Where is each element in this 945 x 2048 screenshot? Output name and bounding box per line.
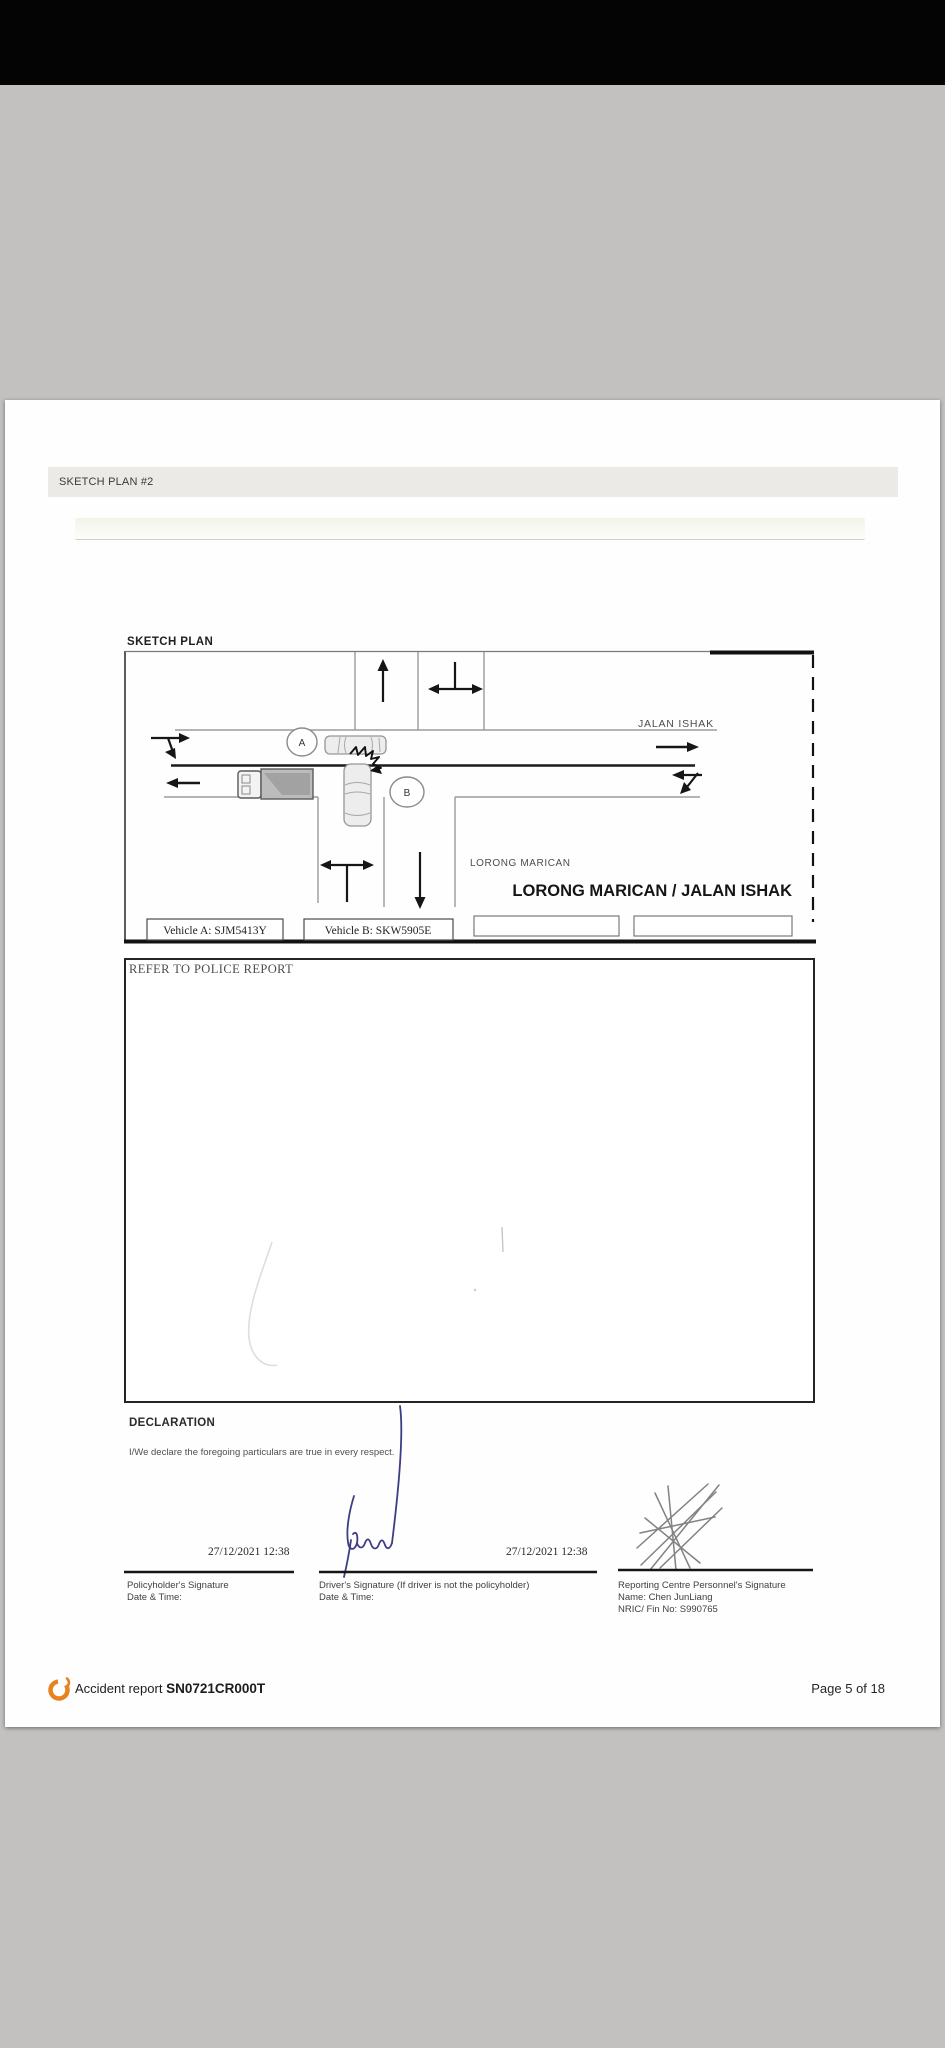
fork-arrow-right bbox=[672, 770, 702, 794]
driver-signature-ink bbox=[344, 1406, 401, 1577]
driver-datetime-label: Date & Time: bbox=[319, 1592, 604, 1604]
sketch-plan-heading: SKETCH PLAN bbox=[127, 636, 213, 648]
t-junction-arrow-bottom bbox=[320, 860, 374, 902]
policyholder-signature-block: Policyholder's Signature Date & Time: bbox=[127, 1580, 307, 1604]
svg-text:Vehicle B: SKW5905E: Vehicle B: SKW5905E bbox=[325, 925, 432, 937]
marker-b-circle: B bbox=[390, 777, 424, 807]
svg-text:B: B bbox=[404, 788, 411, 799]
svg-text:Vehicle A: SJM5413Y: Vehicle A: SJM5413Y bbox=[163, 925, 267, 937]
report-label: Accident report bbox=[75, 1681, 162, 1696]
page-indicator: Page 5 of 18 bbox=[811, 1681, 885, 1696]
sketch-plan-diagram: A B JALAN ISHAK LORONG MARICAN LORONG MA… bbox=[124, 650, 816, 944]
footer-report-id: Accident report SN0721CR000T bbox=[75, 1681, 265, 1696]
faint-pen-marks bbox=[126, 960, 813, 1401]
vehicle-box-empty-1 bbox=[474, 916, 619, 936]
policyholder-datetime-label: Date & Time: bbox=[127, 1592, 307, 1604]
section-header-bar: SKETCH PLAN #2 bbox=[48, 467, 898, 497]
right-arrow bbox=[656, 742, 699, 752]
description-box: REFER TO POLICE REPORT bbox=[124, 958, 815, 1403]
status-bar bbox=[0, 0, 945, 85]
section-title: SKETCH PLAN #2 bbox=[59, 476, 154, 488]
vehicle-a-graphic bbox=[325, 736, 386, 754]
truck-graphic bbox=[238, 769, 313, 799]
screenshot-canvas: SKETCH PLAN #2 SKETCH PLAN bbox=[0, 0, 945, 2048]
vehicle-b-box: Vehicle B: SKW5905E bbox=[304, 919, 453, 940]
fork-arrow-left bbox=[151, 733, 190, 759]
report-page: SKETCH PLAN #2 SKETCH PLAN bbox=[5, 400, 940, 1727]
vehicle-a-box: Vehicle A: SJM5413Y bbox=[147, 919, 283, 940]
marker-a-circle: A bbox=[287, 728, 317, 756]
road-label-jalan-ishak: JALAN ISHAK bbox=[638, 718, 714, 730]
driver-signature-label: Driver's Signature (If driver is not the… bbox=[319, 1580, 604, 1592]
svg-text:A: A bbox=[299, 738, 306, 749]
personnel-signature-scribble bbox=[637, 1484, 722, 1570]
policyholder-signature-label: Policyholder's Signature bbox=[127, 1580, 307, 1592]
scan-artifact-strip bbox=[75, 518, 865, 540]
up-arrow bbox=[378, 659, 389, 702]
personnel-nric: NRIC/ Fin No: S990765 bbox=[618, 1604, 843, 1616]
vehicle-b-graphic bbox=[344, 764, 371, 826]
driver-signature-block: Driver's Signature (If driver is not the… bbox=[319, 1580, 604, 1604]
personnel-signature-block: Reporting Centre Personnel's Signature N… bbox=[618, 1580, 843, 1615]
policyholder-datetime: 27/12/2021 12:38 bbox=[208, 1546, 289, 1558]
t-junction-arrow-top bbox=[428, 662, 483, 694]
personnel-name: Name: Chen JunLiang bbox=[618, 1592, 843, 1604]
left-arrow bbox=[166, 778, 200, 788]
down-arrow bbox=[415, 852, 426, 909]
road-label-lorong-marican: LORONG MARICAN bbox=[470, 858, 571, 869]
driver-datetime: 27/12/2021 12:38 bbox=[506, 1546, 587, 1558]
personnel-signature-label: Reporting Centre Personnel's Signature bbox=[618, 1580, 843, 1592]
junction-label: LORONG MARICAN / JALAN ISHAK bbox=[512, 882, 792, 900]
vehicle-box-empty-2 bbox=[634, 916, 792, 936]
signature-lines bbox=[124, 1570, 813, 1572]
insurer-logo-icon bbox=[47, 1676, 73, 1702]
report-number: SN0721CR000T bbox=[166, 1681, 265, 1696]
